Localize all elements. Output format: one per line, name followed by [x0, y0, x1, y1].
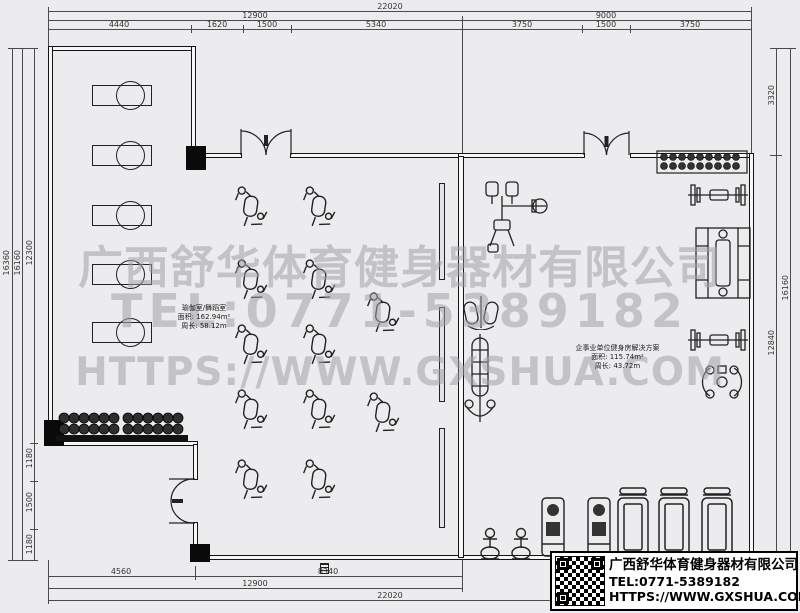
spin-bike-icon [300, 179, 339, 230]
dumbbell-rack-icon [56, 410, 188, 442]
massage-table-icon [92, 85, 152, 106]
dim-label: 1500 [596, 20, 616, 29]
wall-left-room-top [48, 46, 196, 51]
massage-table-icon [92, 205, 152, 226]
room-area: 面积: 162.94m² [158, 313, 250, 322]
company-website: HTTPS://WWW.GXSHUA.COM [609, 590, 800, 604]
qr-code [555, 556, 605, 606]
watermark-url: HTTPS://WWW.GXSHUA.COM [0, 350, 800, 395]
room-perimeter: 周长: 43.72m [560, 362, 675, 371]
dim-label: 9000 [596, 11, 616, 20]
mirror-strip [439, 183, 445, 280]
dim-label: 1500 [25, 492, 34, 512]
upright-bike-icon [478, 526, 502, 562]
company-info-box: 广西舒华体育健身器材有限公司 TEL:0771-5389182 HTTPS://… [550, 551, 798, 611]
dim-label: 22020 [377, 2, 402, 11]
dim-label: 4440 [109, 20, 129, 29]
wall-main-top-b [290, 153, 462, 158]
dim-label: 3320 [767, 85, 776, 105]
spin-bike-icon [300, 382, 339, 433]
spin-bike-icon [232, 179, 271, 230]
spin-bike-icon [364, 285, 403, 336]
pec-fly-icon [698, 364, 746, 400]
dim-label: 12300 [25, 240, 34, 265]
cable-station-icon [482, 180, 558, 258]
room-name: 瑜伽室/舞蹈室 [158, 304, 250, 313]
dim-label: 16160 [781, 275, 790, 300]
room-perimeter: 周长: 58.12m [158, 322, 250, 331]
mirror-strip [439, 428, 445, 528]
double-swing-door-icon [165, 478, 195, 524]
massage-table-icon [92, 145, 152, 166]
wall-gym-top-a [458, 153, 585, 158]
upright-bike-icon [509, 526, 533, 562]
seated-machine-icon [540, 496, 566, 558]
company-tel: TEL:0771-5389182 [609, 575, 800, 589]
spin-bike-icon [232, 252, 271, 303]
climber-icon [460, 332, 500, 426]
dim-label: 1620 [207, 20, 227, 29]
barbell-bench-icon [686, 183, 750, 207]
floor-drain-icon [320, 563, 329, 574]
dim-label: 22020 [377, 591, 402, 600]
wall-right-outer [749, 153, 754, 560]
dim-label: 16360 [2, 250, 11, 275]
floor-plan-canvas: 22020 12900 9000 4440 1620 1500 5340 375… [0, 0, 800, 613]
mirror-strip [439, 307, 445, 402]
dim-label: 5340 [366, 20, 386, 29]
room-label-gym: 企事业单位健身房解决方案 面积: 115.74m² 周长: 43.72m [560, 344, 675, 371]
treadmill-icon [616, 486, 650, 558]
spin-bike-icon [232, 452, 271, 503]
double-swing-door-icon [583, 129, 630, 155]
dim-label: 3750 [680, 20, 700, 29]
company-name: 广西舒华体育健身器材有限公司 [609, 558, 800, 573]
dim-label: 12900 [242, 11, 267, 20]
dumbbell-rack-icon [656, 150, 748, 176]
spin-bike-icon [300, 317, 339, 368]
dim-label: 1180 [25, 534, 34, 554]
spin-bike-icon [364, 385, 403, 436]
spin-bike-icon [300, 452, 339, 503]
spin-bike-icon [232, 382, 271, 433]
dim-label: 4560 [111, 567, 131, 576]
dim-label: 12900 [242, 579, 267, 588]
double-swing-door-icon [240, 127, 292, 155]
wall-left-room-right [191, 46, 196, 155]
massage-table-icon [92, 264, 152, 285]
wall-left-outer [48, 46, 53, 446]
spin-bike-icon [300, 252, 339, 303]
smith-machine-icon [694, 226, 752, 300]
massage-table-icon [92, 322, 152, 343]
seated-machine-icon [586, 496, 612, 558]
dim-label: 16160 [13, 250, 22, 275]
column [190, 544, 210, 562]
dim-label: 1500 [257, 20, 277, 29]
room-area: 面积: 115.74m² [560, 353, 675, 362]
room-label-yoga: 瑜伽室/舞蹈室 面积: 162.94m² 周长: 58.12m [158, 304, 250, 331]
column [186, 146, 206, 170]
dim-label: 3750 [512, 20, 532, 29]
treadmill-icon [657, 486, 691, 558]
barbell-bench-icon [686, 328, 750, 352]
treadmill-icon [700, 486, 734, 558]
dim-label: 1180 [25, 448, 34, 468]
wall-main-left-a [193, 444, 198, 480]
dim-label: 12840 [767, 330, 776, 355]
room-name: 企事业单位健身房解决方案 [560, 344, 675, 353]
stepper-icon [462, 294, 500, 330]
